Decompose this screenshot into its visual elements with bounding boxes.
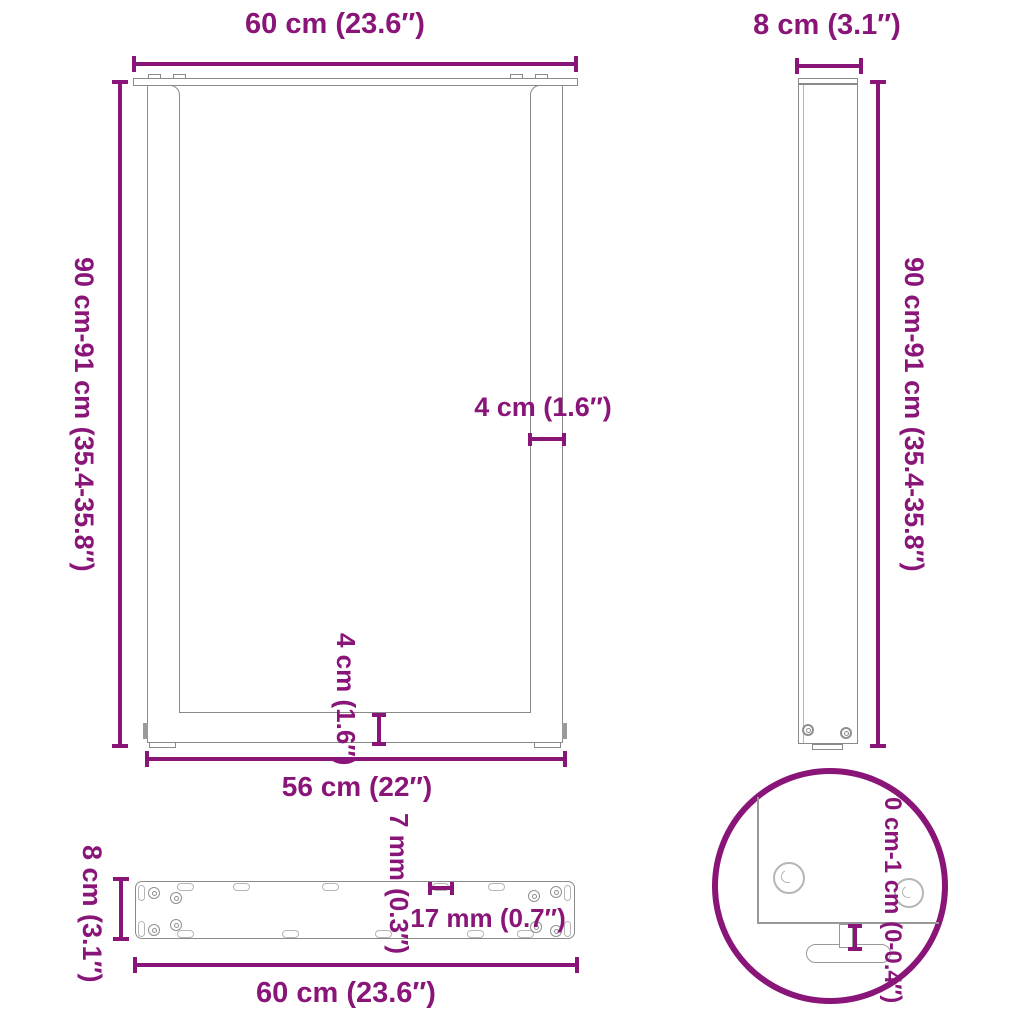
dimension-diagram: 60 cm (23.6″) 90 cm-91 cm (35.4-35.8″) 4… [0, 0, 1024, 1024]
dimension-cap [450, 882, 454, 895]
dimension-cap [848, 924, 862, 928]
front-upright-width-label: 4 cm (1.6″) [443, 392, 643, 423]
dimension-cap [428, 882, 432, 895]
front-foot-span-label: 56 cm (22″) [147, 771, 567, 803]
plate-depth-label: 8 cm (3.1″) [76, 845, 108, 973]
side-depth-label: 8 cm (3.1″) [737, 9, 917, 42]
foot-detail-view: 0 cm-1 cm (0-0.4″) [0, 0, 1024, 1024]
dimension-cap [848, 947, 862, 951]
front-top-width-label: 60 cm (23.6″) [115, 8, 555, 41]
front-height-label: 90 cm-91 cm (35.4-35.8″) [67, 80, 101, 748]
plate-thickness-dimension-line [428, 886, 454, 890]
screw-icon [773, 862, 805, 894]
foot-adjustment-label: 0 cm-1 cm (0-0.4″) [877, 797, 907, 981]
side-height-label: 90 cm-91 cm (35.4-35.8″) [896, 80, 932, 748]
front-crossbar-height-label: 4 cm (1.6″) [330, 633, 362, 759]
hole-diameter-label: 17 mm (0.7″) [397, 903, 579, 934]
plate-width-label: 60 cm (23.6″) [126, 977, 566, 1010]
detail-leg-edge-line [757, 797, 759, 924]
foot-adjustment-dimension-line [853, 924, 857, 951]
